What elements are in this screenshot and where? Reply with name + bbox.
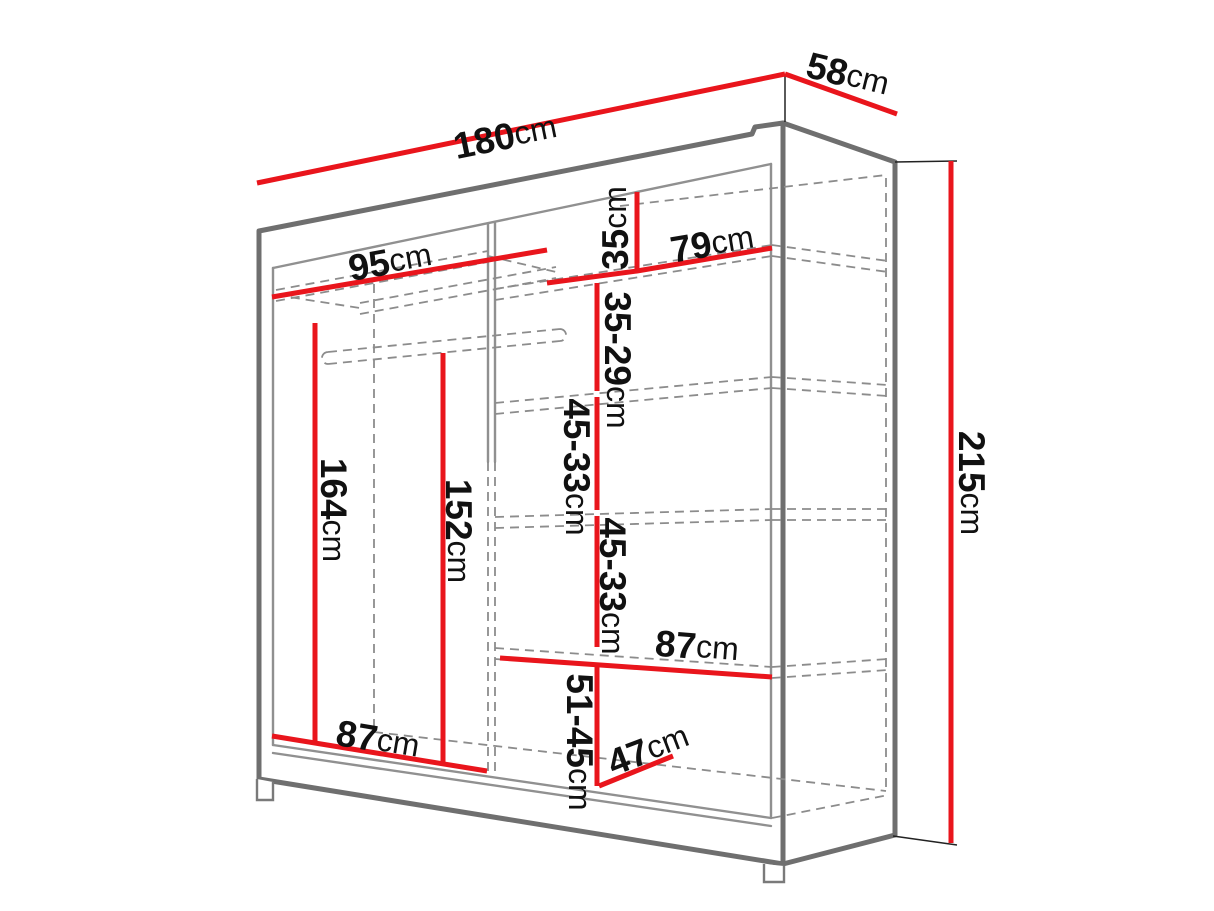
label-shelf-gap-1: 35-29cm bbox=[598, 291, 639, 428]
label-right-shelf-width: 79cm bbox=[667, 216, 756, 270]
label-shelf-gap-2: 45-33cm bbox=[557, 398, 598, 535]
label-rail-height-front: 152cm bbox=[439, 479, 480, 583]
right-panel-edge bbox=[783, 123, 895, 864]
height-bottom-extension bbox=[893, 836, 957, 845]
floor-depth-edge bbox=[772, 795, 888, 818]
label-total-width: 180cm bbox=[450, 106, 560, 167]
wardrobe-dimension-diagram: 180cm 58cm 215cm 95cm 35cm 79cm 35-29cm … bbox=[0, 0, 1214, 911]
wardrobe-diagram-page: 180cm 58cm 215cm 95cm 35cm 79cm 35-29cm … bbox=[0, 0, 1214, 911]
right-foot bbox=[764, 864, 784, 882]
center-divider-hidden bbox=[488, 462, 495, 777]
interior-plinth-edge bbox=[273, 753, 771, 826]
label-middle-shelf-width: 87cm bbox=[654, 622, 741, 669]
label-shelf-gap-3: 45-33cm bbox=[593, 517, 634, 654]
extension-lines bbox=[785, 74, 957, 845]
height-top-extension bbox=[895, 161, 957, 162]
label-top-gap: 35cm bbox=[595, 186, 636, 270]
label-rail-height-back: 164cm bbox=[314, 458, 355, 562]
label-total-height: 215cm bbox=[952, 431, 993, 535]
label-left-section-width: 87cm bbox=[333, 712, 422, 766]
label-left-shelf-width: 95cm bbox=[345, 234, 435, 289]
left-foot bbox=[257, 779, 273, 800]
shelf-3 bbox=[495, 509, 888, 528]
label-bottom-gap: 51-45cm bbox=[560, 673, 601, 810]
shelf-2 bbox=[495, 377, 888, 414]
label-bottom-depth: 47cm bbox=[602, 715, 695, 783]
back-top-edge bbox=[620, 175, 886, 206]
interior-floor-edge bbox=[273, 745, 771, 818]
